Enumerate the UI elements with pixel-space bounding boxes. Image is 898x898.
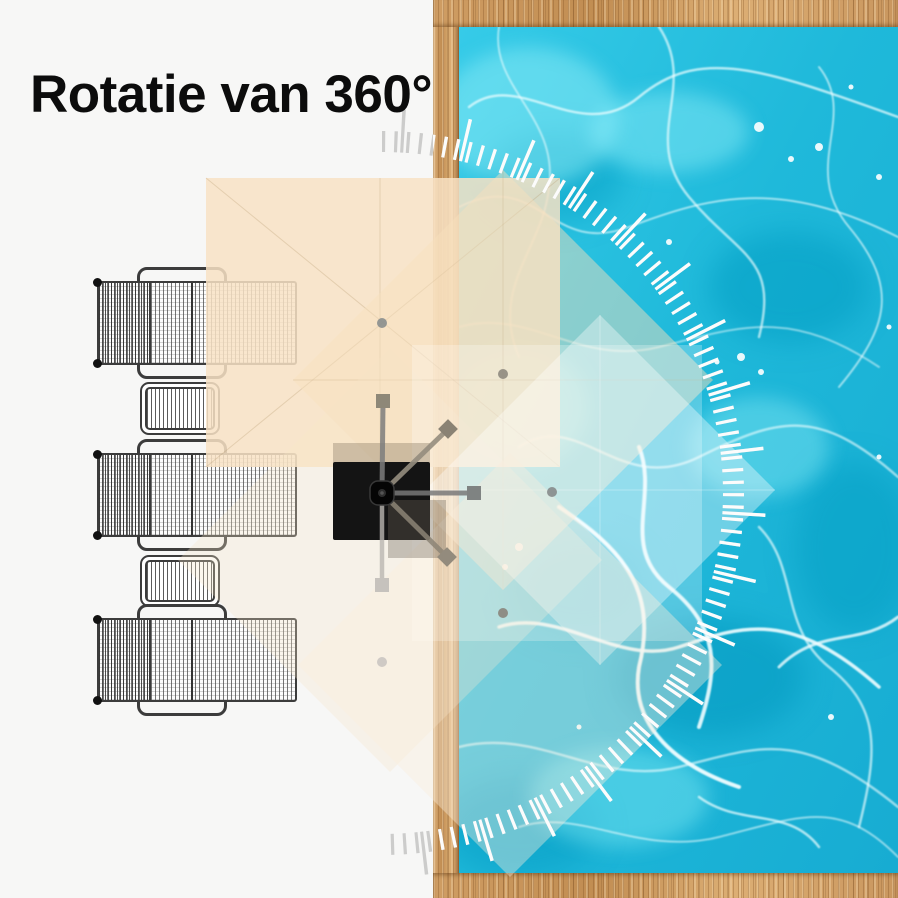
umbrella-pole-hub <box>370 481 394 505</box>
headline-rotation-360: Rotatie van 360° <box>30 64 432 125</box>
parasol-rotation-illustration: Rotatie van 360° <box>0 0 898 898</box>
rotation-overlay <box>0 0 898 898</box>
